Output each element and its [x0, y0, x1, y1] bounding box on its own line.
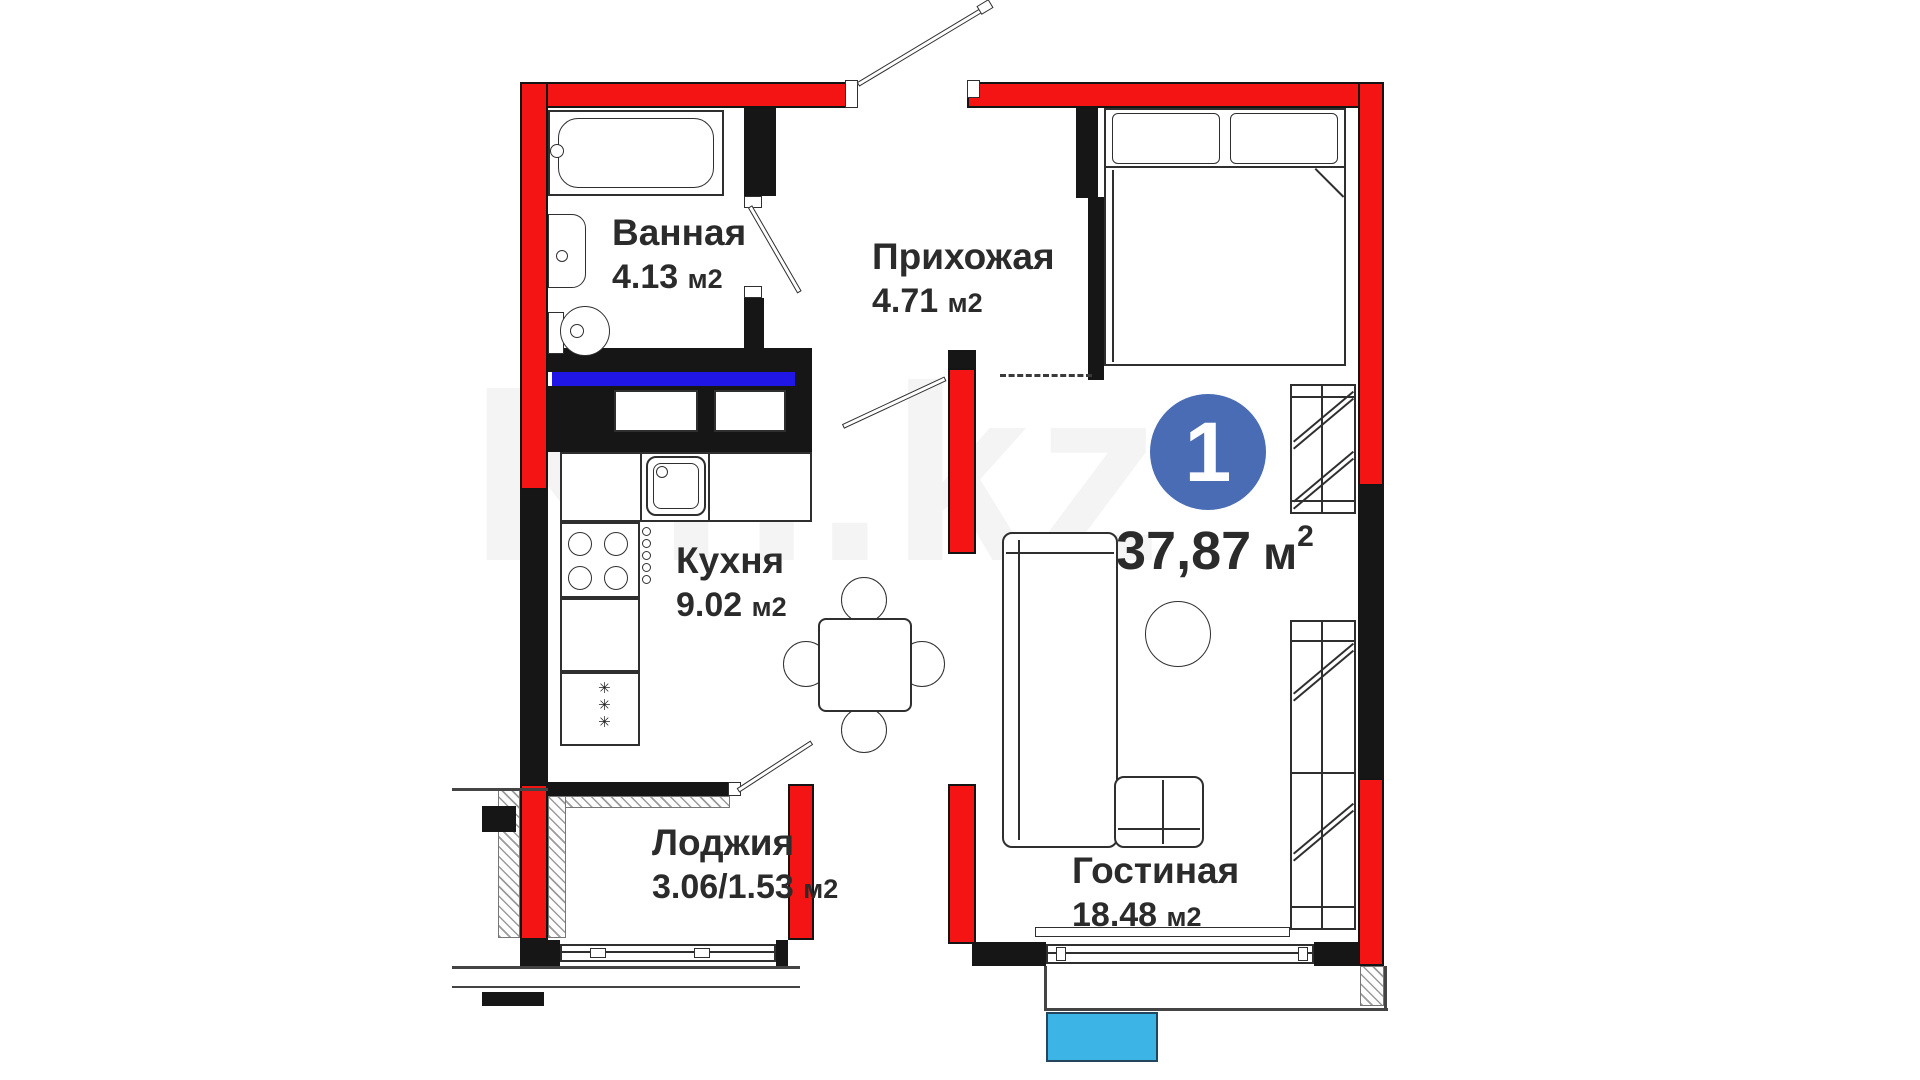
- coffee-table: [1145, 601, 1211, 667]
- entrance-door-leaf: [857, 6, 986, 87]
- total-area-sup: 2: [1297, 520, 1314, 553]
- room-area: 4.13: [612, 258, 678, 296]
- bathtub-drain: [550, 144, 564, 158]
- room-name: Лоджия: [652, 822, 838, 864]
- wall-loggia-cap-right: [776, 940, 788, 966]
- room-area: 18.48: [1072, 896, 1157, 934]
- wardrobe-shelf: [1292, 906, 1354, 908]
- toilet-flush: [570, 324, 584, 338]
- bathroom-door-leaf: [748, 205, 802, 293]
- sofa-cushion-line: [1006, 552, 1114, 554]
- pillow: [1112, 113, 1220, 164]
- bed-edge-line: [1112, 170, 1114, 362]
- wall-left-upper: [520, 82, 548, 490]
- wardrobe-divider: [1321, 386, 1323, 512]
- blanket: [1104, 166, 1346, 366]
- total-area-value: 37,87: [1116, 521, 1251, 581]
- entrance-door-frame: [967, 80, 980, 98]
- facade-line: [452, 986, 800, 988]
- room-name: Прихожая: [872, 236, 1055, 278]
- closet-box: [714, 390, 786, 432]
- room-area-unit: м2: [948, 288, 983, 318]
- wall-hallway-lower: [1088, 197, 1104, 380]
- room-area-unit: м2: [803, 874, 838, 904]
- wall-kitchen-loggia: [548, 782, 730, 796]
- wall-top-left: [520, 82, 852, 108]
- facade-line: [1384, 966, 1387, 1010]
- wall-right-middle: [1358, 486, 1384, 778]
- pillow: [1230, 113, 1338, 164]
- burner: [568, 532, 592, 556]
- wall-living-bottom-left: [972, 942, 1046, 966]
- window-mullion: [1298, 947, 1308, 961]
- window-mullion: [1056, 947, 1066, 961]
- hinge-dot: [642, 551, 651, 560]
- wall-center-cap: [948, 350, 976, 368]
- wall-loggia-cap-left: [548, 940, 560, 966]
- fridge-snowflakes: ✳ ✳ ✳: [598, 680, 628, 731]
- room-label-bathroom: Ванная 4.13 м2: [612, 212, 746, 298]
- room-area: 9.02: [676, 586, 742, 624]
- burner: [604, 532, 628, 556]
- toilet-bowl: [560, 306, 610, 356]
- burner: [604, 566, 628, 590]
- room-label-living: Гостиная 18.48 м2: [1072, 850, 1239, 936]
- room-label-loggia: Лоджия 3.06/1.53 м2: [652, 822, 838, 908]
- kitchen-cabinet: [560, 598, 640, 672]
- wardrobe-shelf: [1292, 640, 1354, 642]
- counter-divider: [708, 454, 710, 520]
- hinge-dot: [642, 527, 651, 536]
- bathtub-inner: [558, 118, 714, 188]
- room-area-unit: м2: [688, 264, 723, 294]
- room-label-kitchen: Кухня 9.02 м2: [676, 540, 787, 626]
- room-name: Гостиная: [1072, 850, 1239, 892]
- sofa-cushion-line: [1162, 780, 1164, 844]
- facade-block: [482, 806, 516, 832]
- wall-right-lower: [1358, 778, 1384, 966]
- living-window: [1046, 944, 1314, 964]
- kitchen-tap: [656, 466, 668, 478]
- blue-partition-bar: [552, 372, 795, 386]
- hinge-dot: [642, 539, 651, 548]
- wall-center: [948, 368, 976, 554]
- facade-right-hatch: [1360, 966, 1384, 1006]
- closet-box: [614, 390, 698, 432]
- chair: [841, 707, 887, 753]
- bathroom-door-frame: [744, 286, 762, 298]
- wall-living-bottom-right: [1314, 942, 1360, 966]
- wall-left-loggia: [520, 784, 548, 940]
- wall-right-upper: [1358, 82, 1384, 486]
- facade-block: [482, 992, 544, 1006]
- facade-line: [452, 788, 548, 791]
- room-area-unit: м2: [1167, 902, 1202, 932]
- bathroom-sink: [548, 214, 586, 288]
- room-area-unit: м2: [752, 592, 787, 622]
- facade-line: [1044, 966, 1047, 1010]
- wardrobe-shelf: [1292, 772, 1354, 774]
- entrance-door-frame: [845, 80, 858, 108]
- wall-top-right: [967, 82, 1384, 108]
- wall-left-bottom-corner: [520, 938, 548, 966]
- wall-left-middle: [520, 490, 548, 784]
- room-label-hallway: Прихожая 4.71 м2: [872, 236, 1055, 322]
- sofa-cushion-line: [1118, 828, 1200, 830]
- room-name: Ванная: [612, 212, 746, 254]
- wall-living-left: [948, 784, 976, 944]
- loggia-left-hatch: [548, 796, 566, 938]
- hinge-dot: [642, 563, 651, 572]
- room-area: 3.06/1.53: [652, 868, 794, 906]
- floor-plan-canvas: Kn.kz: [0, 0, 1920, 1080]
- counter-divider: [640, 454, 642, 520]
- sofa-back-line: [1018, 540, 1020, 840]
- wall-bathroom-right: [744, 108, 776, 196]
- bathroom-sink-drain: [556, 250, 568, 262]
- total-area-unit: м: [1263, 527, 1297, 579]
- balcony-marker: [1046, 1012, 1158, 1062]
- dining-table: [818, 618, 912, 712]
- window-mullion: [694, 948, 710, 958]
- chair: [841, 577, 887, 623]
- burner: [568, 566, 592, 590]
- facade-line: [1044, 1008, 1388, 1011]
- sofa-seat: [1114, 776, 1204, 848]
- loggia-parapet-hatch: [560, 796, 730, 808]
- unit-number-badge: 1: [1150, 394, 1266, 510]
- hinge-dot: [642, 575, 651, 584]
- room-area: 4.71: [872, 282, 938, 320]
- wall-bathroom-stub: [744, 298, 764, 350]
- living-window-glass: [1048, 952, 1312, 954]
- facade-line: [452, 966, 800, 969]
- zone-boundary-dashed: [1000, 374, 1092, 377]
- room-name: Кухня: [676, 540, 787, 582]
- wall-hallway-upper: [1076, 108, 1098, 198]
- total-area: 37,87м2: [1116, 520, 1314, 582]
- window-mullion: [590, 948, 606, 958]
